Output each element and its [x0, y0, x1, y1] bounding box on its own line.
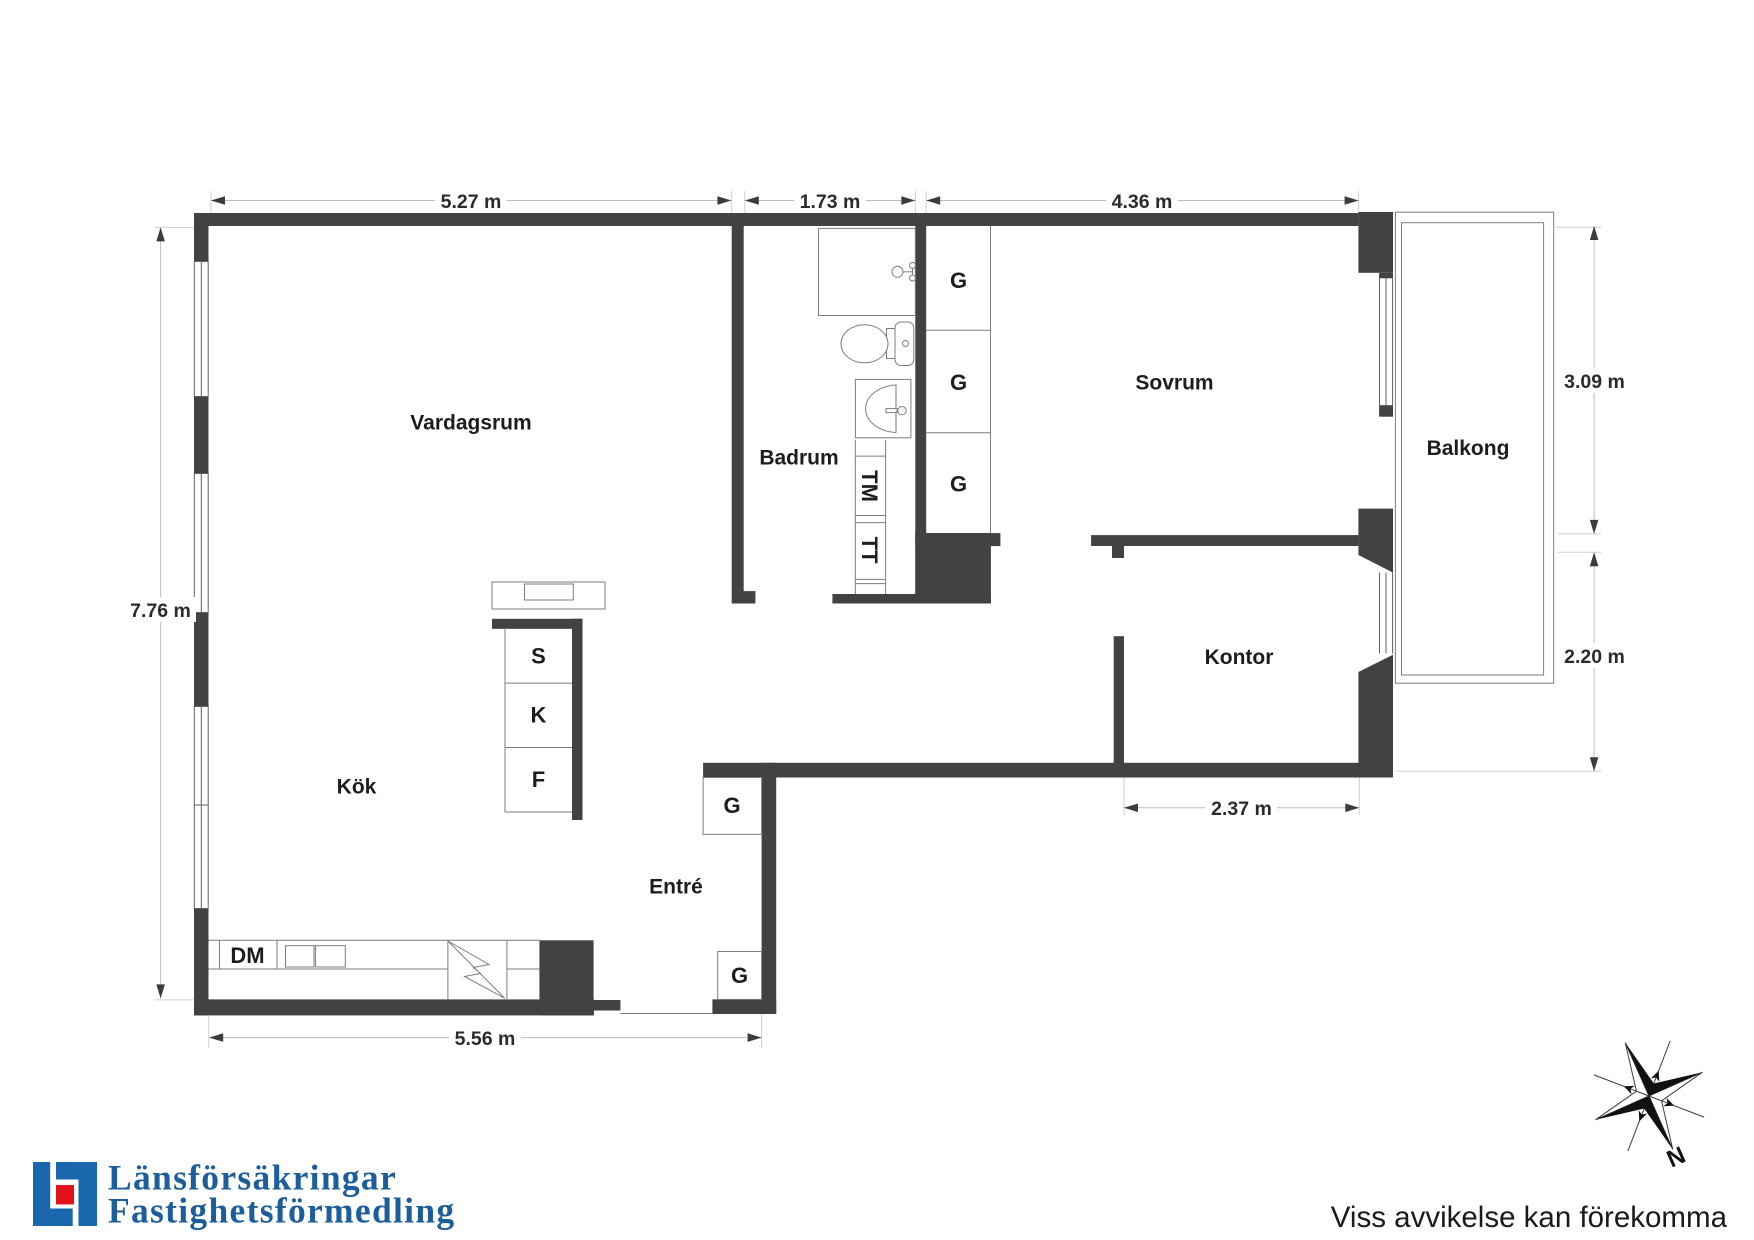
svg-text:TM: TM [857, 470, 882, 502]
svg-text:1.73 m: 1.73 m [800, 191, 861, 213]
svg-text:Fastighetsförmedling: Fastighetsförmedling [108, 1191, 455, 1231]
svg-text:Balkong: Balkong [1427, 437, 1510, 460]
svg-text:4.36 m: 4.36 m [1112, 191, 1173, 213]
svg-text:3.09 m: 3.09 m [1564, 371, 1625, 393]
svg-text:G: G [950, 268, 967, 293]
svg-text:2.37 m: 2.37 m [1211, 798, 1272, 820]
svg-text:7.76 m: 7.76 m [130, 600, 191, 622]
svg-text:Badrum: Badrum [759, 447, 838, 470]
svg-text:Viss avvikelse kan förekomma: Viss avvikelse kan förekomma [1331, 1201, 1728, 1234]
svg-text:K: K [531, 703, 547, 728]
svg-text:G: G [950, 472, 967, 497]
svg-text:G: G [723, 793, 740, 818]
svg-text:Sovrum: Sovrum [1135, 372, 1213, 395]
svg-text:TT: TT [857, 537, 882, 564]
svg-text:G: G [731, 963, 748, 988]
svg-text:DM: DM [230, 943, 264, 968]
svg-text:G: G [950, 370, 967, 395]
svg-text:Entré: Entré [649, 876, 703, 899]
svg-text:S: S [531, 644, 546, 669]
svg-text:5.27 m: 5.27 m [441, 191, 502, 213]
svg-text:2.20 m: 2.20 m [1564, 646, 1625, 668]
svg-text:Kontor: Kontor [1205, 646, 1274, 669]
svg-text:Kök: Kök [337, 776, 377, 799]
svg-text:Vardagsrum: Vardagsrum [410, 412, 531, 435]
svg-text:F: F [532, 767, 545, 792]
svg-text:5.56 m: 5.56 m [455, 1028, 516, 1050]
